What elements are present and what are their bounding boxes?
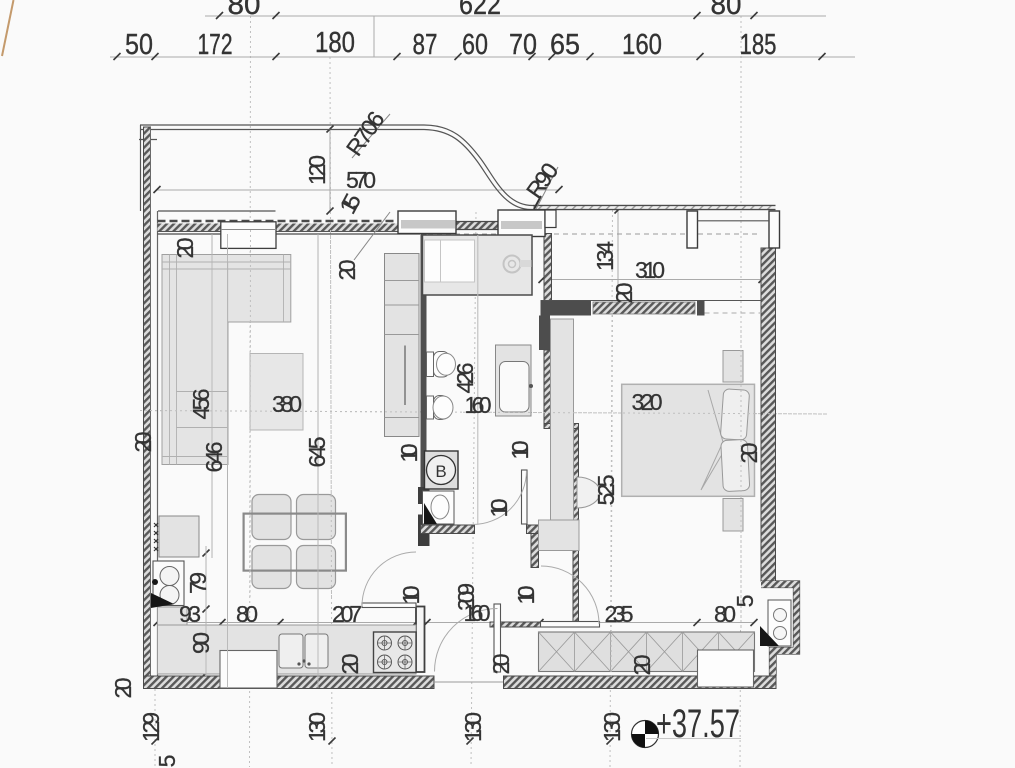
- svg-text:320: 320: [632, 389, 663, 415]
- svg-text:20: 20: [611, 283, 637, 304]
- svg-text:120: 120: [304, 155, 330, 185]
- svg-text:130: 130: [599, 712, 625, 742]
- svg-text:130: 130: [304, 712, 330, 742]
- svg-text:456: 456: [188, 389, 214, 420]
- svg-text:646: 646: [201, 442, 227, 473]
- svg-text:70: 70: [509, 29, 537, 61]
- svg-text:87: 87: [413, 29, 438, 61]
- svg-text:80: 80: [228, 0, 261, 21]
- svg-text:65: 65: [550, 29, 580, 61]
- svg-text:20: 20: [488, 654, 514, 675]
- svg-text:129: 129: [138, 712, 164, 742]
- svg-text:235: 235: [605, 601, 634, 627]
- svg-text:80: 80: [236, 601, 258, 627]
- svg-text:+37.57: +37.57: [656, 702, 740, 746]
- svg-text:60: 60: [462, 29, 488, 61]
- svg-text:185: 185: [740, 29, 777, 61]
- svg-text:525: 525: [593, 475, 619, 506]
- svg-text:622: 622: [459, 0, 501, 21]
- svg-text:20: 20: [337, 654, 363, 675]
- svg-text:180: 180: [315, 27, 355, 59]
- svg-text:10: 10: [398, 586, 424, 605]
- svg-text:570: 570: [346, 167, 376, 193]
- svg-text:10: 10: [396, 444, 422, 463]
- svg-text:10: 10: [486, 499, 512, 518]
- svg-text:310: 310: [635, 257, 665, 283]
- svg-text:130: 130: [460, 712, 486, 742]
- svg-text:172: 172: [198, 29, 233, 61]
- svg-text:20: 20: [110, 678, 136, 699]
- svg-text:10: 10: [513, 586, 539, 605]
- svg-text:645: 645: [304, 437, 330, 468]
- svg-text:380: 380: [272, 391, 302, 417]
- svg-text:79: 79: [185, 572, 211, 594]
- svg-text:20: 20: [736, 443, 762, 464]
- svg-text:5: 5: [732, 595, 758, 608]
- svg-text:20: 20: [172, 238, 198, 259]
- svg-text:5: 5: [154, 755, 180, 768]
- svg-text:20: 20: [629, 655, 655, 676]
- svg-text:90: 90: [188, 632, 214, 654]
- svg-text:93: 93: [179, 601, 201, 627]
- svg-text:207: 207: [332, 601, 362, 627]
- svg-text:20: 20: [334, 260, 360, 281]
- svg-text:426: 426: [452, 363, 478, 394]
- svg-text:B: B: [435, 462, 446, 481]
- svg-text:160: 160: [622, 29, 662, 61]
- svg-text:134: 134: [592, 241, 618, 271]
- svg-text:20: 20: [130, 432, 156, 453]
- svg-text:50: 50: [125, 29, 153, 61]
- svg-text:80: 80: [711, 0, 742, 21]
- svg-text:10: 10: [507, 441, 533, 460]
- svg-text:160: 160: [465, 392, 492, 418]
- svg-text:209: 209: [453, 583, 479, 611]
